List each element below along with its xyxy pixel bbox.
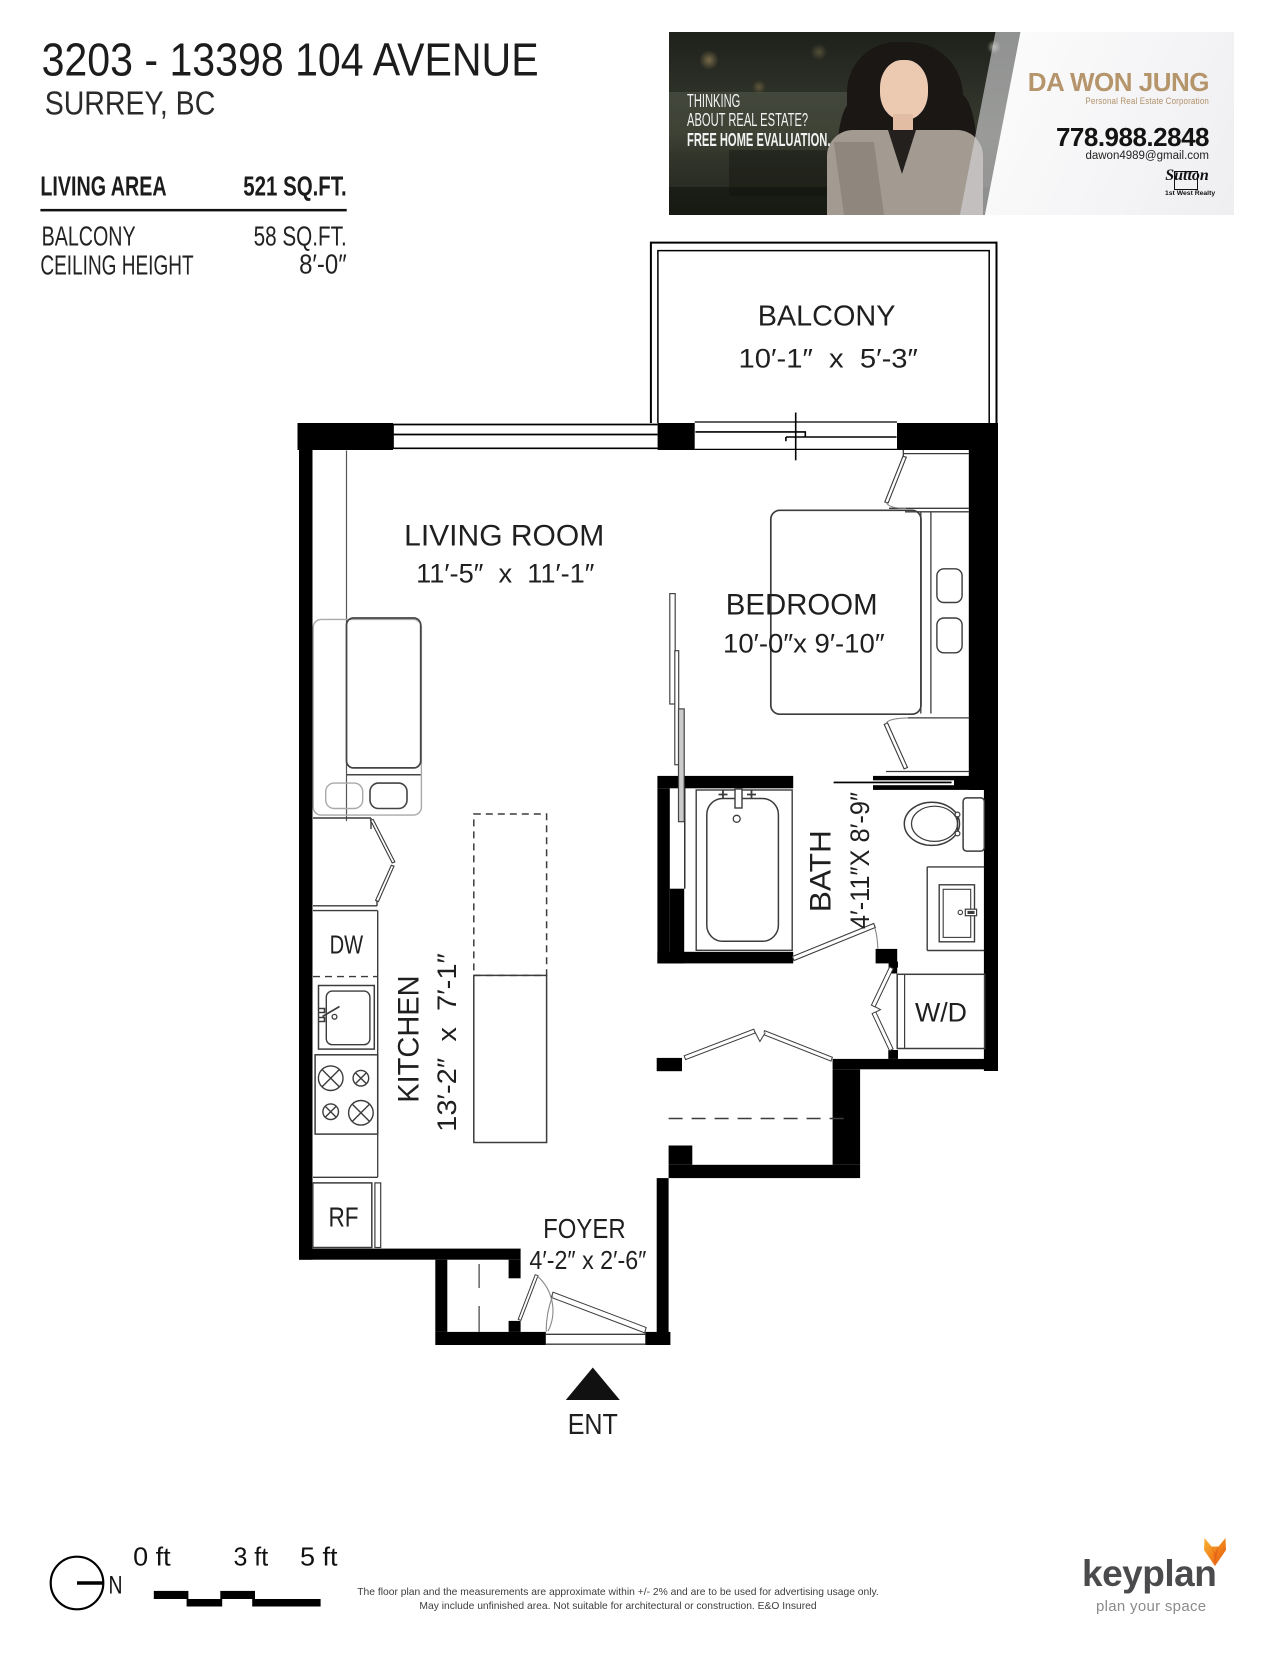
svg-text:FOYER: FOYER (543, 1213, 626, 1244)
svg-text:BALCONY: BALCONY (758, 301, 896, 333)
svg-text:W/D: W/D (915, 998, 967, 1028)
svg-text:DW: DW (330, 930, 364, 960)
svg-text:4′-11″X 8′-9″: 4′-11″X 8′-9″ (845, 792, 875, 930)
svg-text:LIVING ROOM: LIVING ROOM (404, 519, 604, 552)
svg-text:10′-1″ x 5′-3″: 10′-1″ x 5′-3″ (739, 343, 919, 373)
svg-text:RF: RF (328, 1201, 358, 1232)
svg-text:N: N (109, 1571, 123, 1599)
svg-text:5 ft: 5 ft (300, 1542, 338, 1572)
svg-text:ENT: ENT (568, 1409, 618, 1441)
svg-text:KITCHEN: KITCHEN (393, 975, 426, 1102)
svg-text:BATH: BATH (805, 830, 838, 912)
svg-text:10′-0″x 9′-10″: 10′-0″x 9′-10″ (723, 628, 885, 658)
svg-text:3 ft: 3 ft (233, 1542, 268, 1572)
svg-text:0 ft: 0 ft (133, 1542, 171, 1572)
svg-text:13′-2″ x 7′-1″: 13′-2″ x 7′-1″ (432, 953, 462, 1132)
svg-text:11′-5″ x 11′-1″: 11′-5″ x 11′-1″ (416, 559, 595, 589)
svg-text:4′-2″ x 2′-6″: 4′-2″ x 2′-6″ (529, 1245, 646, 1275)
svg-text:BEDROOM: BEDROOM (726, 588, 878, 621)
